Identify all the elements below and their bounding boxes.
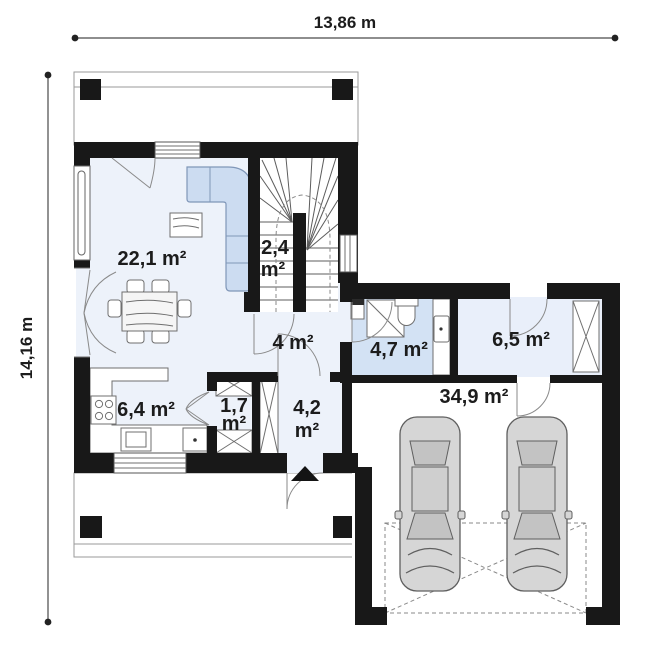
car-roof [519,467,555,511]
dimension-top: 13,86 m [72,13,619,41]
stair-spine-wall [293,213,306,312]
utility-room-area-label: 6,5 m² [492,329,550,351]
car-mirror [458,511,465,519]
vestibule-area-unit: m² [295,420,320,442]
kitchen-area-label: 6,4 m² [117,399,175,421]
floor-plan-page: 13,86 m 14,16 m [0,0,655,648]
kitchen-window [114,453,186,473]
car-roof [412,467,448,511]
dimension-endpoint-dot [72,35,79,42]
dishwasher [183,428,207,451]
dining-chair [127,330,144,343]
dining-chair [127,280,144,293]
vestibule-area-value: 4,2 [293,397,321,419]
staircase-area-unit: m² [261,259,286,281]
car-rear-window [410,441,450,465]
closet-area-unit: m² [222,413,247,435]
dining-chair [152,330,169,343]
car-mirror [565,511,572,519]
dining-chair [108,300,121,317]
dining-chair [178,300,191,317]
car-mirror [395,511,402,519]
terrace-sliding-window [155,142,200,158]
floor-plan-drawing: 13,86 m 14,16 m [0,0,655,648]
car-windshield [514,513,560,539]
staircase-window [340,235,357,272]
utility-wardrobe [573,301,599,372]
living-room-area-label: 22,1 m² [118,248,187,270]
terrace-pillar [80,79,101,100]
width-dimension-label: 13,86 m [314,13,376,32]
terrace-pillar [332,79,353,100]
washbasin-vanity [433,299,450,375]
stove [91,396,116,424]
height-dimension-label: 14,16 m [17,317,36,379]
bathroom-area-label: 4,7 m² [370,339,428,361]
car-rear-window [517,441,557,465]
washing-machine [351,299,364,319]
car [395,417,465,591]
car-windshield [407,513,453,539]
terrace-pillar [333,516,355,538]
dimension-endpoint-dot [45,619,52,626]
staircase-area-value: 2,4 [261,237,290,259]
car [502,417,572,591]
terrace-pillar [80,516,102,538]
dimension-endpoint-dot [45,72,52,79]
vestibule-wardrobe [260,374,278,454]
terrace-bottom [74,473,358,557]
dimension-left: 14,16 m [17,72,51,626]
garage-area-label: 34,9 m² [440,386,509,408]
terrace-top [74,72,358,145]
car-mirror [502,511,509,519]
hall-area-label: 4 m² [272,332,313,354]
coffee-table [170,213,202,237]
dimension-endpoint-dot [612,35,619,42]
kitchen-sink [121,428,151,451]
dining-chair [152,280,169,293]
living-room-window [74,166,90,260]
